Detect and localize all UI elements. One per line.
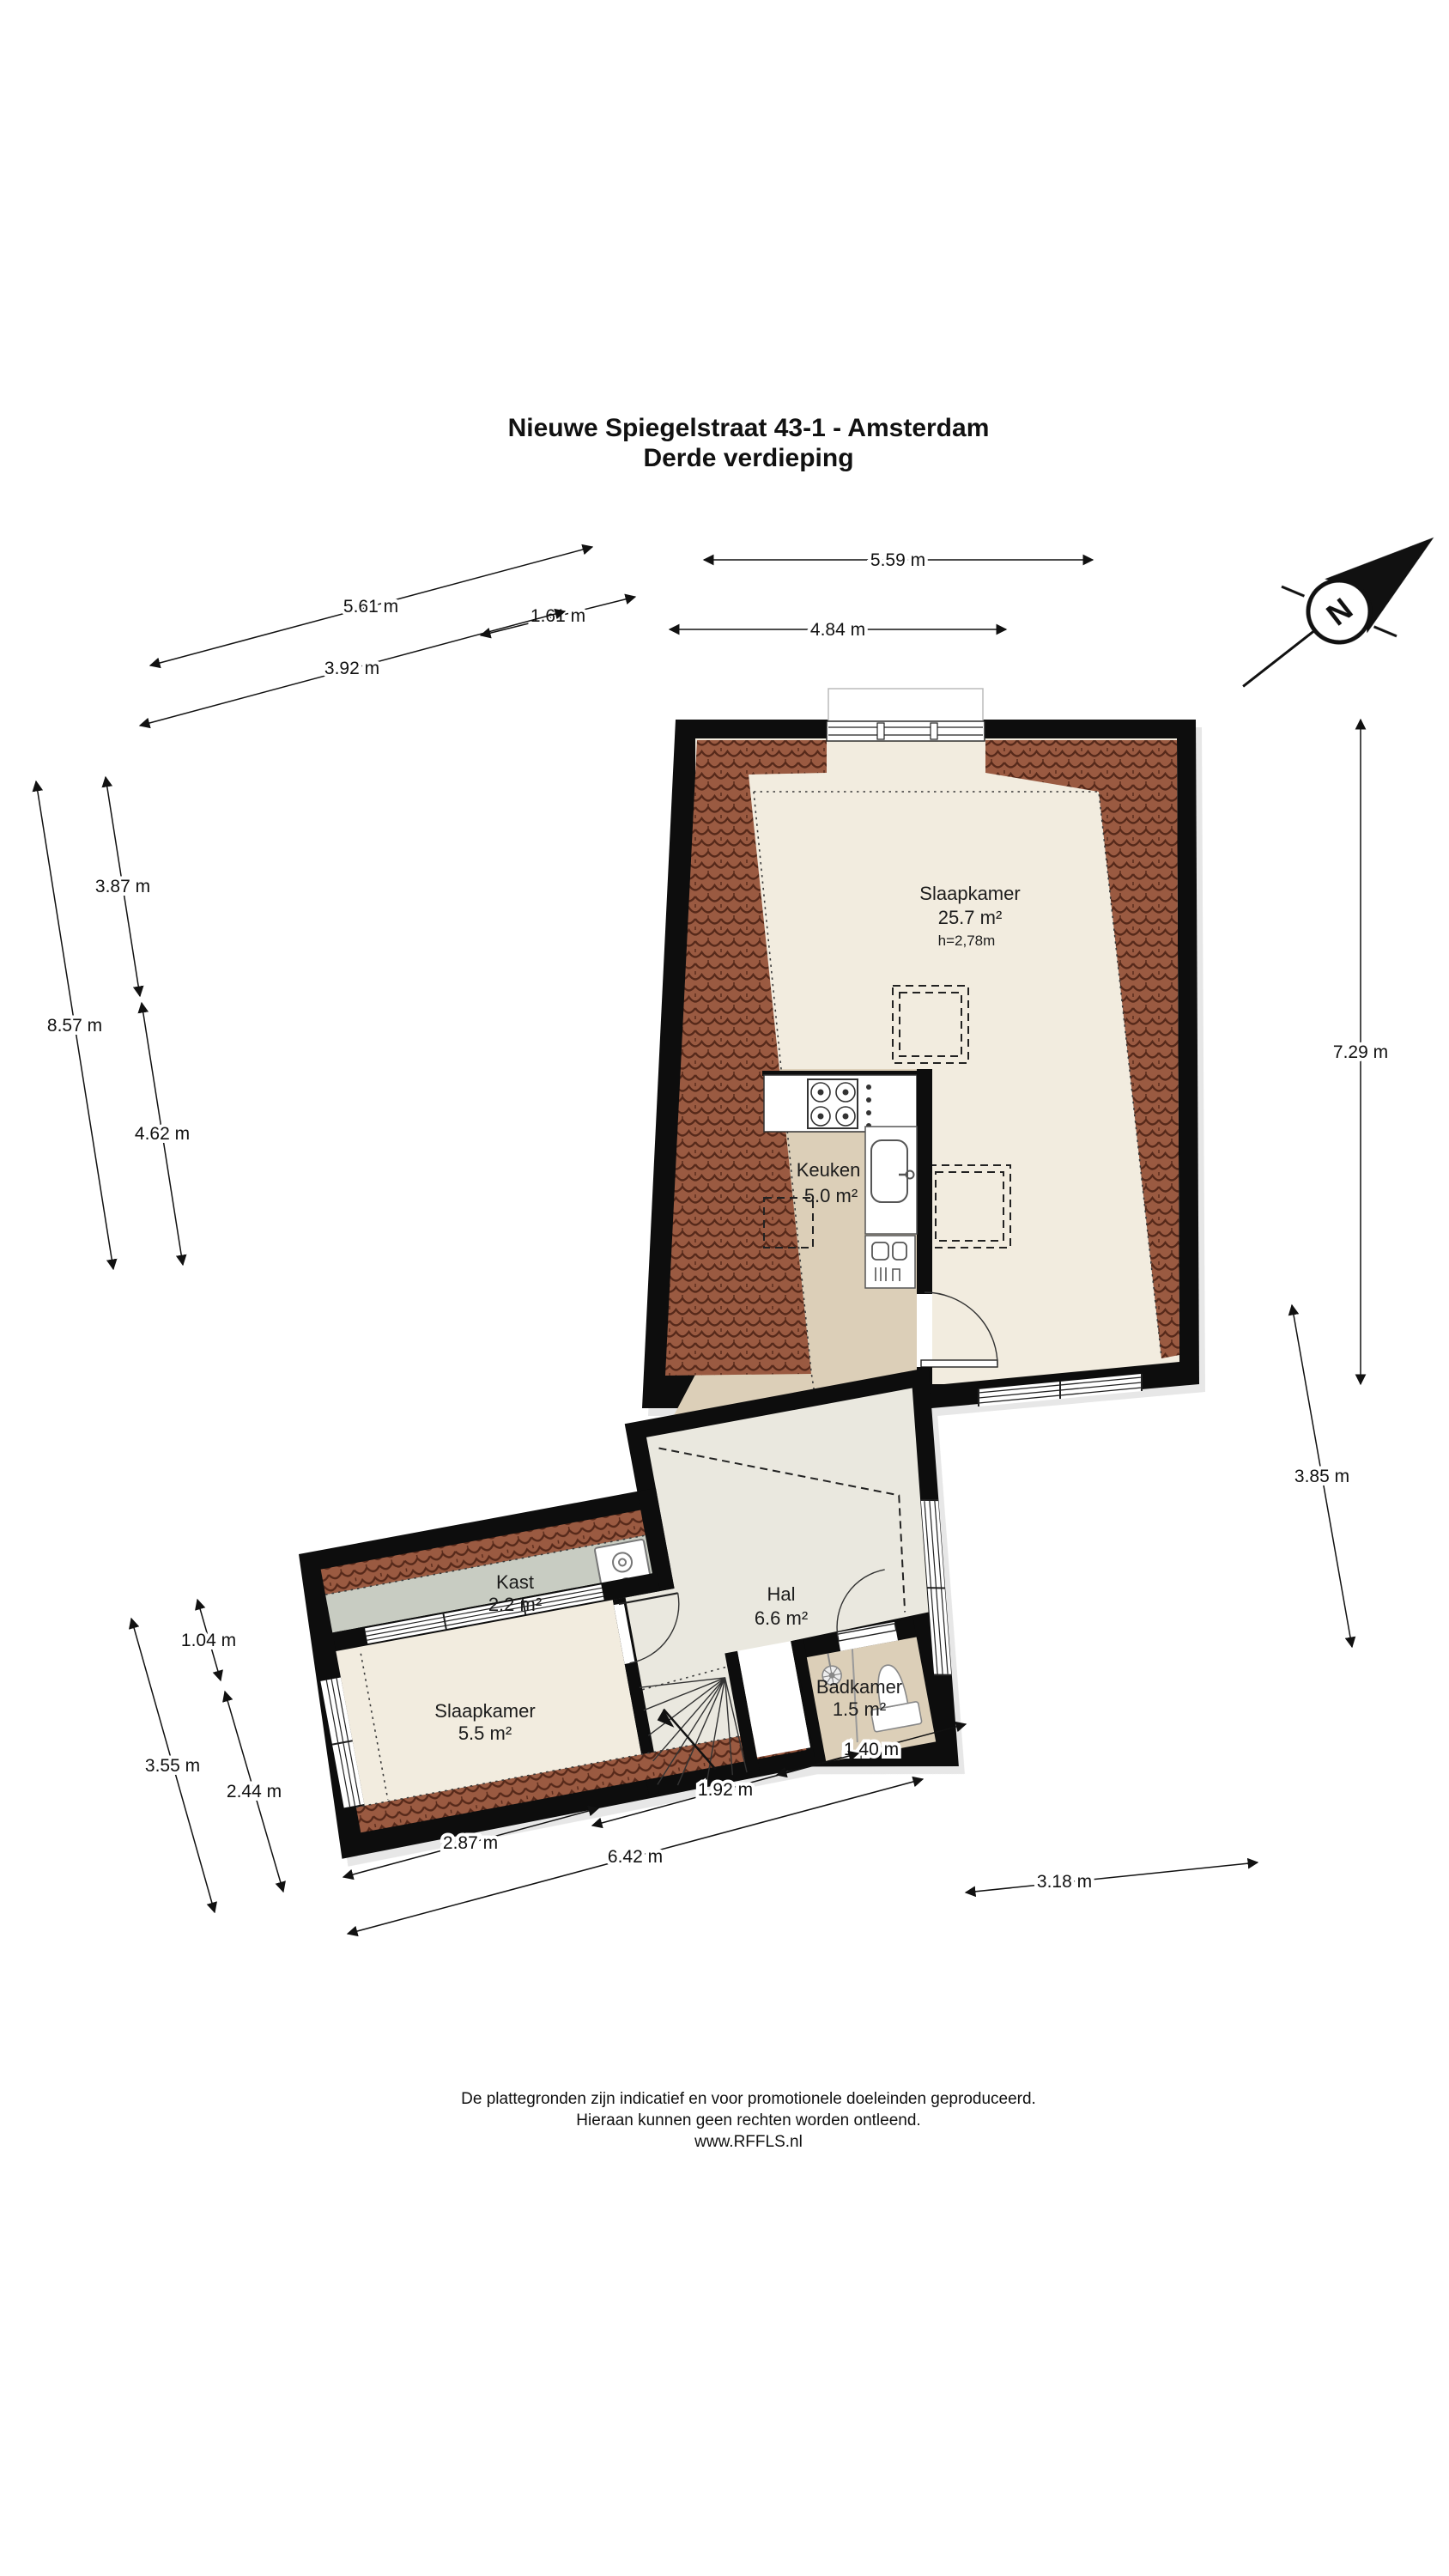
kitchen-wall [917, 1069, 932, 1294]
svg-text:3.18 m: 3.18 m [1037, 1872, 1092, 1892]
label-slaapkamer-main: Slaapkamer [919, 883, 1020, 904]
dimension-8-57: 8.57 m [36, 781, 113, 1269]
svg-text:1.04 m: 1.04 m [181, 1631, 236, 1650]
svg-text:5.61 m: 5.61 m [343, 597, 398, 617]
dimension-5-59: 5.59 m [704, 550, 1093, 570]
dimension-3-18: 3.18 m [966, 1862, 1258, 1893]
label-slaapkamer-klein-area: 5.5 m² [458, 1722, 512, 1744]
svg-text:8.57 m: 8.57 m [47, 1016, 102, 1036]
dimension-3-87: 3.87 m [95, 777, 150, 996]
dimension-7-29: 7.29 m [1333, 720, 1388, 1384]
label-kast-area: 2.2 m² [488, 1594, 542, 1615]
svg-text:3.85 m: 3.85 m [1294, 1467, 1349, 1486]
label-keuken-area: 5.0 m² [804, 1185, 858, 1206]
dimension-1-04: 1.04 m [181, 1600, 236, 1680]
dimension-3-85: 3.85 m [1292, 1305, 1352, 1647]
upper-block [642, 689, 1199, 1453]
svg-text:2.87 m: 2.87 m [443, 1833, 498, 1853]
svg-text:4.62 m: 4.62 m [135, 1124, 190, 1144]
dormer-recess [828, 689, 983, 721]
dimension-3-92: 3.92 m [140, 611, 565, 726]
label-keuken: Keuken [797, 1159, 861, 1181]
svg-text:4.84 m: 4.84 m [810, 620, 865, 640]
svg-text:1.92 m: 1.92 m [698, 1780, 753, 1800]
floorplan-canvas: Nieuwe Spiegelstraat 43-1 - Amsterdam De… [0, 0, 1449, 2576]
label-badkamer-area: 1.5 m² [833, 1698, 886, 1720]
dimension-2-44: 2.44 m [225, 1692, 283, 1892]
sink-icon [865, 1127, 917, 1234]
label-slaapkamer-main-area: 25.7 m² [938, 907, 1003, 928]
footer-line1: De plattegronden zijn indicatief en voor… [461, 2090, 1036, 2108]
dimension-3-55: 3.55 m [131, 1619, 215, 1912]
compass-icon: N [1210, 494, 1449, 729]
title-line2: Derde verdieping [643, 444, 853, 472]
svg-text:2.44 m: 2.44 m [227, 1782, 282, 1801]
svg-text:7.29 m: 7.29 m [1333, 1042, 1388, 1062]
footer-line3: www.RFFLS.nl [694, 2133, 803, 2151]
dimension-1-61: 1.61 m [481, 597, 635, 635]
label-hal: Hal [767, 1583, 795, 1605]
footer-disclaimer: De plattegronden zijn indicatief en voor… [461, 2090, 1036, 2151]
label-slaapkamer-klein: Slaapkamer [434, 1700, 535, 1722]
svg-text:6.42 m: 6.42 m [608, 1847, 663, 1867]
dimension-4-84: 4.84 m [670, 620, 1006, 640]
svg-text:1.61 m: 1.61 m [530, 606, 585, 626]
label-kast: Kast [496, 1571, 534, 1593]
svg-text:3.87 m: 3.87 m [95, 877, 150, 896]
label-hal-area: 6.6 m² [755, 1607, 808, 1629]
svg-text:3.92 m: 3.92 m [324, 659, 379, 678]
svg-text:3.55 m: 3.55 m [145, 1756, 200, 1776]
label-slaapkamer-main-height: h=2,78m [938, 933, 996, 949]
label-badkamer: Badkamer [816, 1676, 902, 1698]
dimension-5-61: 5.61 m [150, 547, 592, 665]
kitchen-counter [762, 1073, 917, 1132]
footer-line2: Hieraan kunnen geen rechten worden ontle… [576, 2111, 920, 2129]
svg-text:5.59 m: 5.59 m [870, 550, 925, 570]
window-top [827, 721, 985, 741]
page-title: Nieuwe Spiegelstraat 43-1 - Amsterdam De… [508, 414, 990, 472]
dishwasher-icon [865, 1236, 915, 1288]
title-line1: Nieuwe Spiegelstraat 43-1 - Amsterdam [508, 414, 990, 442]
floorplan-page: Nieuwe Spiegelstraat 43-1 - Amsterdam De… [0, 0, 1449, 2576]
dimension-4-62: 4.62 m [135, 1003, 190, 1265]
svg-text:1.40 m: 1.40 m [844, 1740, 899, 1759]
